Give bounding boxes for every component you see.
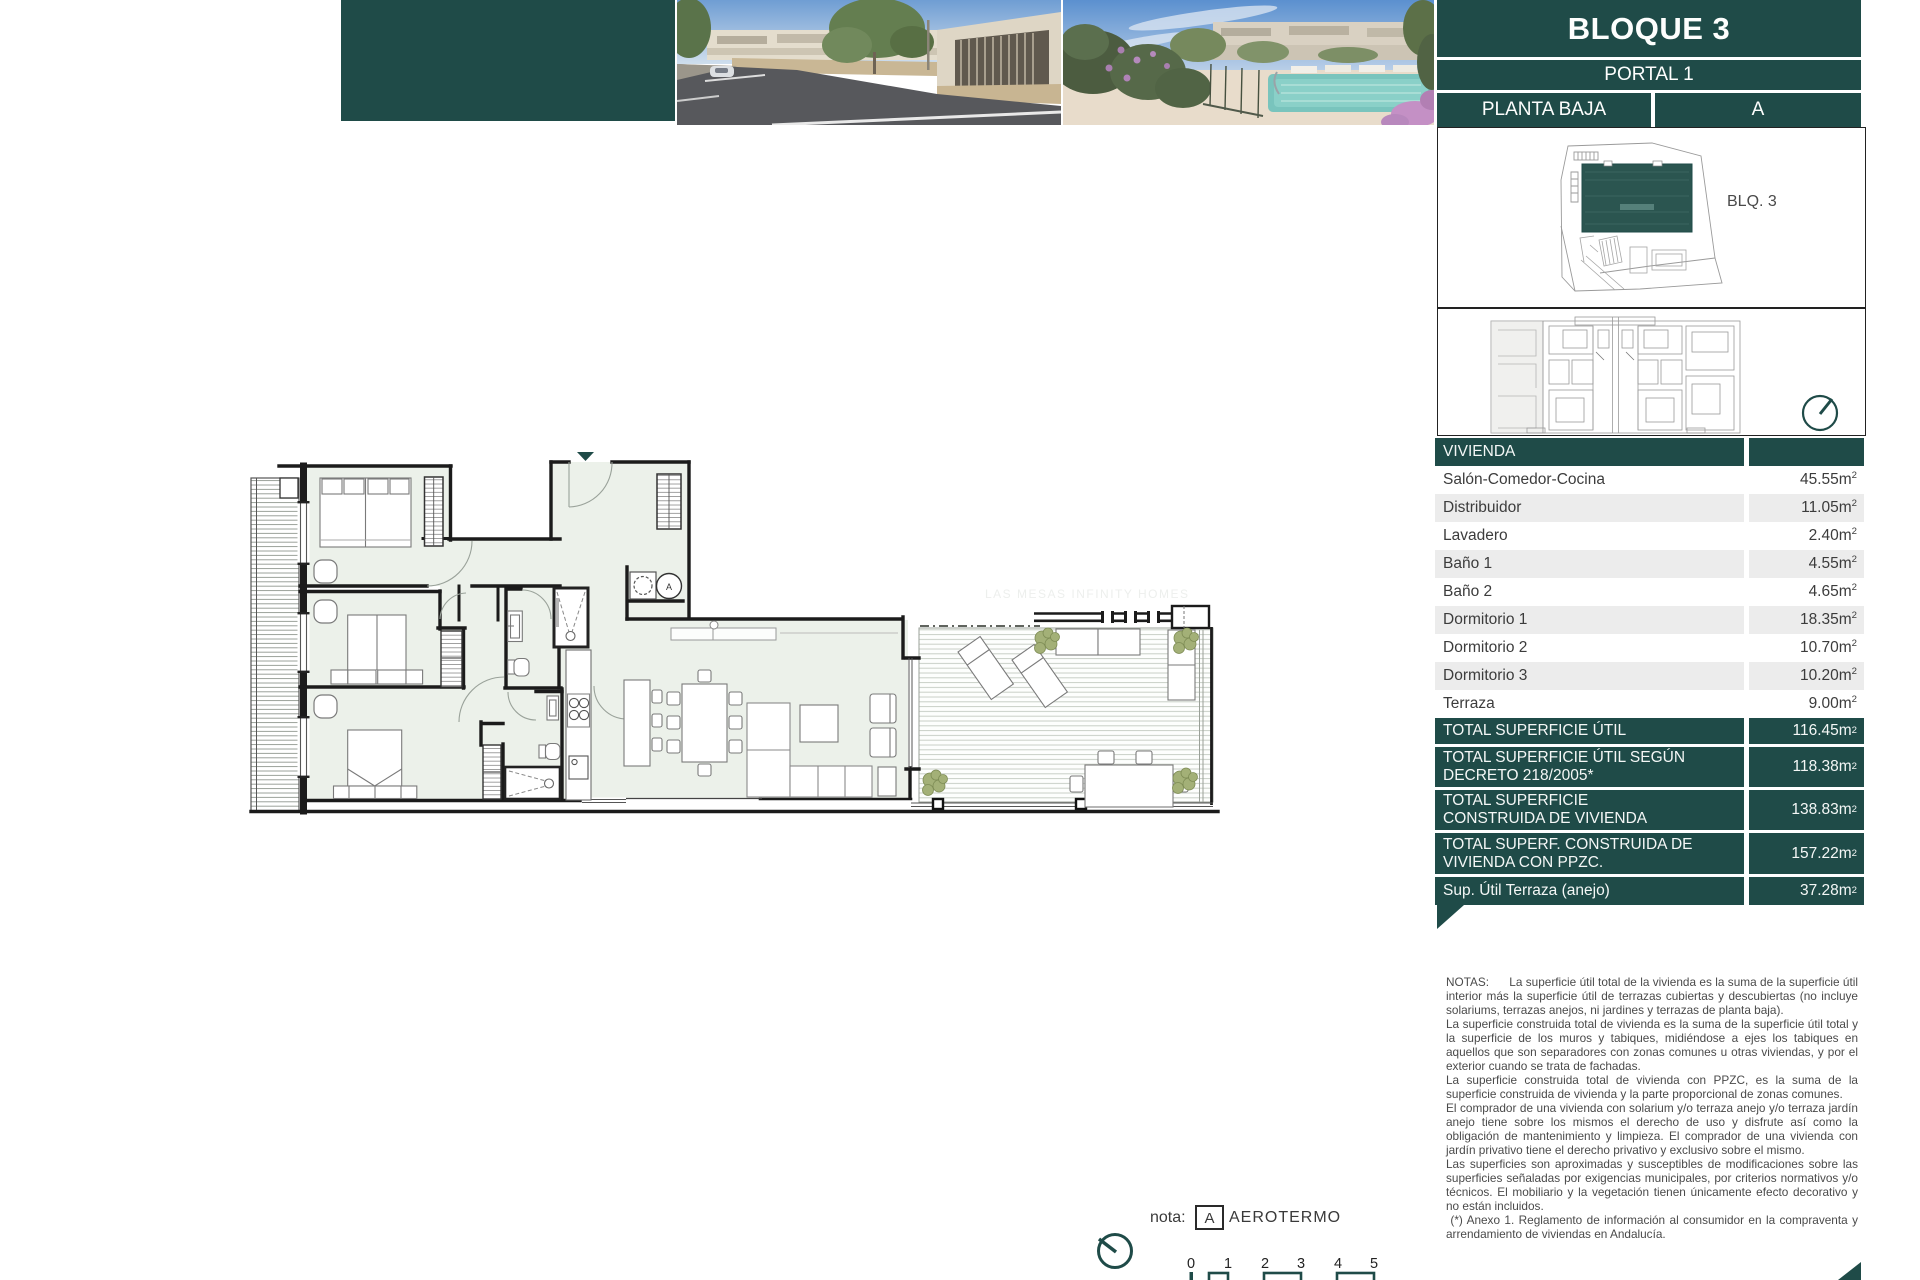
svg-text:BLQ. 3: BLQ. 3 (1727, 193, 1777, 210)
svg-text:A: A (666, 582, 672, 592)
svg-text:2: 2 (1261, 1256, 1269, 1272)
svg-text:A: A (1204, 1210, 1214, 1227)
svg-text:AEROTERMO: AEROTERMO (1229, 1209, 1341, 1226)
svg-text:5: 5 (1370, 1256, 1378, 1272)
svg-text:0: 0 (1187, 1256, 1195, 1272)
svg-text:LAS MESAS INFINITY HOMES: LAS MESAS INFINITY HOMES (985, 587, 1189, 601)
svg-text:4: 4 (1334, 1256, 1342, 1272)
svg-text:1: 1 (1224, 1256, 1232, 1272)
svg-text:3: 3 (1297, 1256, 1305, 1272)
svg-text:nota:: nota: (1150, 1209, 1186, 1226)
